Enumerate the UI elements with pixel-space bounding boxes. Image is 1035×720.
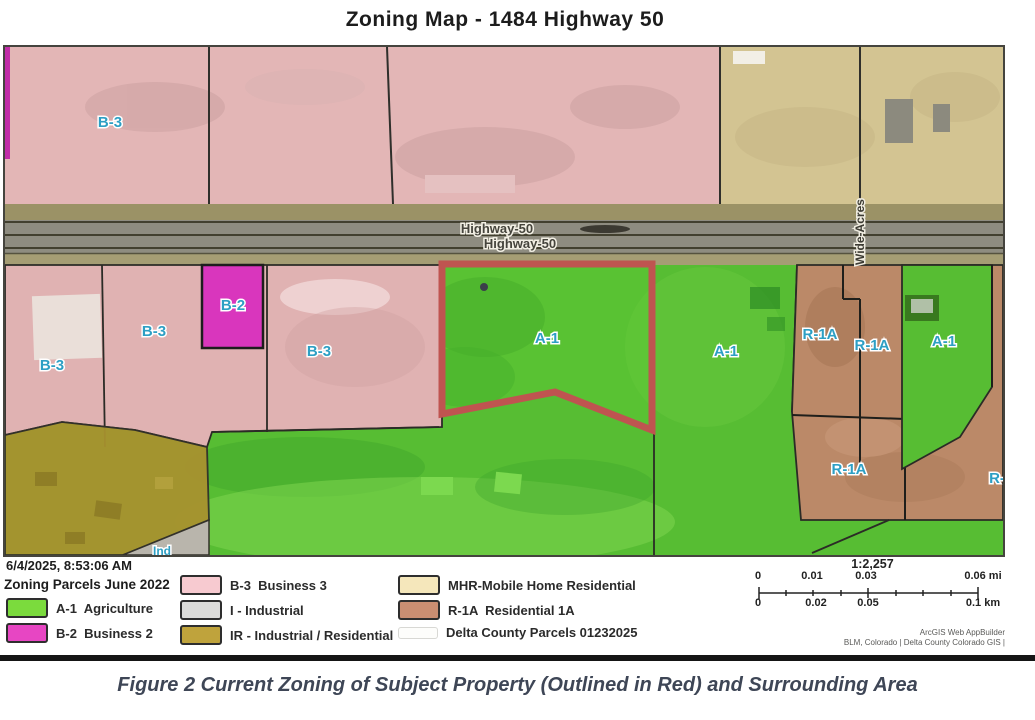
building xyxy=(421,477,453,495)
legend-item-b2: B-2 Business 2 xyxy=(6,623,153,643)
label-b3-left: B-3 xyxy=(40,357,64,374)
legend-swatch-mhr xyxy=(398,575,440,595)
scale-km-3: 0.1 km xyxy=(966,597,1000,609)
legend-label-b3: B-3 Business 3 xyxy=(230,578,327,593)
building-roof xyxy=(911,299,933,313)
zoning-map-canvas: B-3 B-3 B-3 B-3 B-2 A-1 A-1 A-1 R-1A R-1… xyxy=(5,47,1003,555)
legend-label-b2: B-2 Business 2 xyxy=(56,626,153,641)
legend-label-ir: IR - Industrial / Residential xyxy=(230,628,393,643)
label-b2: B-2 xyxy=(221,297,245,314)
legend-swatch-r1a xyxy=(398,600,440,620)
label-b3-mid: B-3 xyxy=(142,323,166,340)
parcel-b2-sliver xyxy=(5,47,10,159)
zoning-map: B-3 B-3 B-3 B-3 B-2 A-1 A-1 A-1 R-1A R-1… xyxy=(3,45,1005,557)
legend-swatch-a1 xyxy=(6,598,48,618)
map-attribution: ArcGIS Web AppBuilder BLM, Colorado | De… xyxy=(700,628,1005,648)
scale-mi-0: 0 xyxy=(755,570,761,582)
legend-item-r1a: R-1A Residential 1A xyxy=(398,600,575,620)
building xyxy=(933,104,950,132)
legend-swatch-b2 xyxy=(6,623,48,643)
legend-label-mhr: MHR-Mobile Home Residential xyxy=(448,578,636,593)
legend-label-industrial: I - Industrial xyxy=(230,603,304,618)
attribution-line-1: ArcGIS Web AppBuilder xyxy=(700,628,1005,638)
label-wide-acres: Wide-Acres xyxy=(853,199,867,265)
attribution-line-2: BLM, Colorado | Delta County Colorado GI… xyxy=(700,638,1005,648)
scale-km-0: 0 xyxy=(755,597,761,609)
main-parcel-band xyxy=(5,264,1003,555)
label-r1a-west: R-1A xyxy=(802,326,837,343)
legend-swatch-industrial xyxy=(180,600,222,620)
legend-label-a1: A-1 Agriculture xyxy=(56,601,153,616)
label-ind: Ind xyxy=(153,544,171,555)
vehicle xyxy=(580,225,630,233)
figure-page: Zoning Map - 1484 Highway 50 xyxy=(0,0,1035,720)
legend-swatch-county-parcels xyxy=(398,627,438,639)
map-title: Zoning Map - 1484 Highway 50 xyxy=(0,8,1010,32)
label-a1-east: A-1 xyxy=(714,343,738,360)
label-highway-50-1: Highway-50 xyxy=(461,221,533,236)
legend-item-b3: B-3 Business 3 xyxy=(180,575,327,595)
label-b3-top: B-3 xyxy=(98,114,122,131)
label-highway-50-2: Highway-50 xyxy=(484,236,556,251)
label-b3-right: B-3 xyxy=(307,343,331,360)
scale-km-2: 0.05 xyxy=(857,597,878,609)
legend-label-r1a: R-1A Residential 1A xyxy=(448,603,575,618)
scale-km-1: 0.02 xyxy=(805,597,826,609)
legend-item-industrial: I - Industrial xyxy=(180,600,304,620)
legend-item-mhr: MHR-Mobile Home Residential xyxy=(398,575,636,595)
legend-swatch-ir xyxy=(180,625,222,645)
top-parcel-band xyxy=(5,47,1003,204)
label-a1-far-east: A-1 xyxy=(932,333,956,350)
scale-bar: 1:2,257 0 0.01 0.03 0.06 mi 0 0.02 0.05 … xyxy=(740,557,1035,609)
building xyxy=(885,99,913,143)
divider-rule xyxy=(0,655,1035,661)
map-point-marker xyxy=(480,283,488,291)
legend-layer-title: Zoning Parcels June 2022 xyxy=(4,577,170,592)
legend-item-a1: A-1 Agriculture xyxy=(6,598,153,618)
legend-timestamp: 6/4/2025, 8:53:06 AM xyxy=(6,558,132,573)
scale-ratio: 1:2,257 xyxy=(800,557,945,571)
scale-mi-1: 0.01 xyxy=(801,570,822,582)
legend-swatch-b3 xyxy=(180,575,222,595)
label-r1a-mid: R-1A xyxy=(854,337,889,354)
building xyxy=(733,51,765,64)
label-a1-subject: A-1 xyxy=(535,330,559,347)
building xyxy=(767,317,785,331)
building xyxy=(750,287,780,309)
label-r1a-edge: R- xyxy=(989,470,1003,487)
legend: 6/4/2025, 8:53:06 AM Zoning Parcels June… xyxy=(0,558,740,654)
scale-mi-2: 0.03 xyxy=(855,570,876,582)
figure-caption: Figure 2 Current Zoning of Subject Prope… xyxy=(0,674,1035,697)
legend-item-county-parcels: Delta County Parcels 01232025 xyxy=(398,625,638,640)
scale-mi-3: 0.06 mi xyxy=(964,570,1001,582)
building xyxy=(32,294,102,360)
legend-item-ir: IR - Industrial / Residential xyxy=(180,625,393,645)
label-r1a-south: R-1A xyxy=(831,461,866,478)
building xyxy=(494,472,522,495)
legend-label-county-parcels: Delta County Parcels 01232025 xyxy=(446,625,638,640)
